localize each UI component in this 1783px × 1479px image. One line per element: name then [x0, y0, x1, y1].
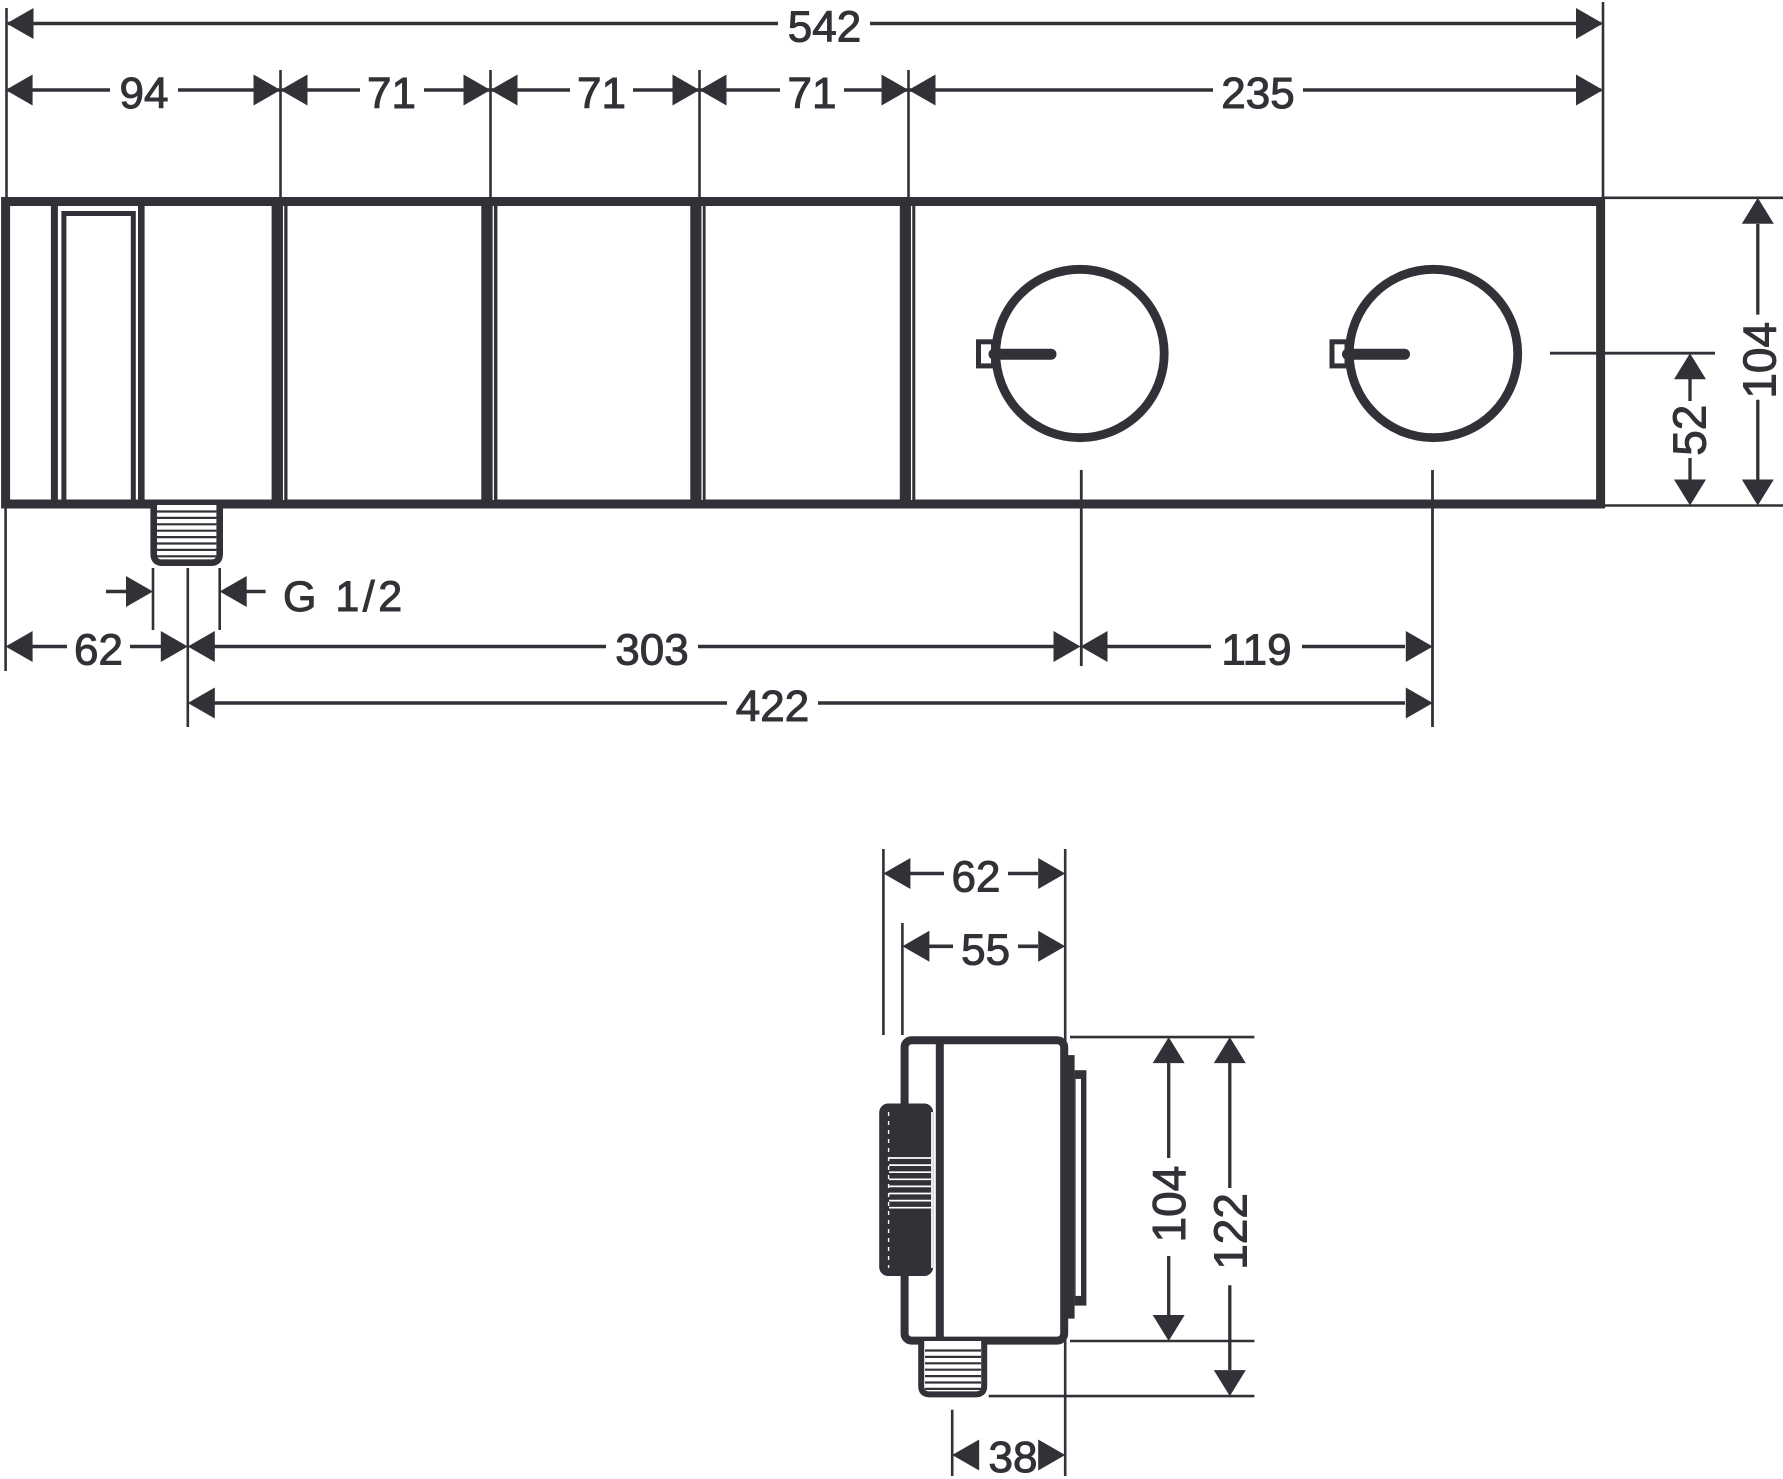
svg-text:104: 104: [1143, 1166, 1195, 1243]
svg-text:542: 542: [788, 3, 861, 52]
svg-text:122: 122: [1204, 1193, 1256, 1270]
svg-text:94: 94: [120, 69, 169, 118]
svg-text:38: 38: [989, 1433, 1038, 1479]
svg-text:71: 71: [367, 69, 416, 118]
svg-text:62: 62: [74, 626, 123, 675]
svg-text:104: 104: [1734, 322, 1783, 399]
svg-text:119: 119: [1221, 626, 1291, 675]
svg-text:55: 55: [961, 925, 1010, 974]
svg-text:71: 71: [577, 69, 626, 118]
svg-text:52: 52: [1664, 405, 1716, 456]
svg-text:235: 235: [1221, 69, 1294, 118]
svg-text:303: 303: [615, 626, 688, 675]
svg-text:71: 71: [788, 69, 837, 118]
svg-text:G 1/2: G 1/2: [283, 573, 406, 621]
svg-text:62: 62: [952, 853, 1001, 902]
svg-text:422: 422: [736, 682, 809, 731]
